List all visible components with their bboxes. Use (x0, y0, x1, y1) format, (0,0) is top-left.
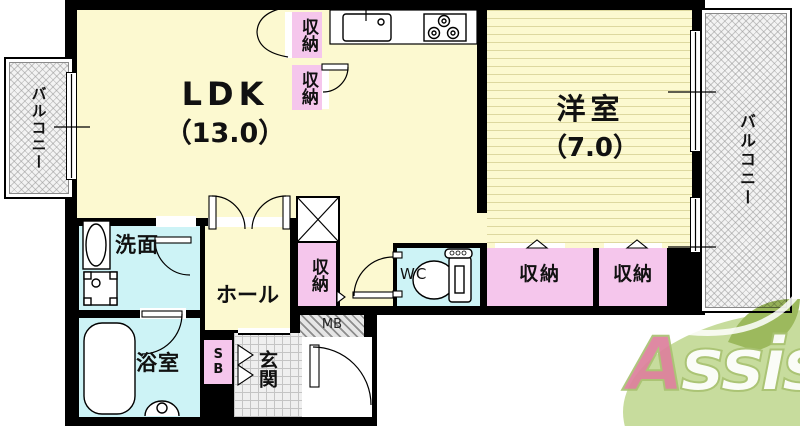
hall-label: ホール (205, 284, 290, 306)
balcony-left: バルコニー (4, 57, 74, 199)
shoe-box-label: SB (204, 341, 232, 383)
ldk-size-label: （13.0） (150, 120, 300, 148)
balcony-right-floor: バルコニー (705, 13, 787, 308)
washroom-label: 洗面 (106, 234, 168, 256)
room-western (487, 10, 692, 248)
meter-box-label: MB (300, 318, 364, 332)
balcony-right: バルコニー (700, 8, 792, 313)
entrance-step (238, 328, 290, 335)
room-hall (205, 226, 290, 330)
storage-hall-label: 収納 (299, 246, 335, 304)
balcony-right-label: バルコニー (734, 113, 758, 208)
corridor-wc (340, 218, 393, 306)
window-western-upper (690, 30, 701, 152)
room-ldk (77, 10, 477, 218)
assist-logo-text: Assist (627, 322, 800, 408)
pipe-space-box (296, 196, 340, 243)
assist-logo-letter-a: A (627, 322, 680, 408)
entrance-label: 玄関 (256, 350, 276, 388)
bathroom-label: 浴室 (118, 352, 198, 374)
balcony-left-floor: バルコニー (9, 62, 69, 194)
window-ldk-balcony (66, 72, 77, 180)
storage-b-label: 収納 (599, 265, 667, 285)
wc-label: WC (400, 267, 427, 283)
storage-a-label: 収納 (487, 265, 593, 285)
window-western-lower (690, 197, 701, 253)
closet-door-gap-top2 (322, 67, 329, 109)
western-room-label: 洋室 (528, 94, 653, 124)
assist-logo-rest: ssist (680, 322, 800, 408)
storage-top2-label: 収納 (292, 66, 322, 109)
western-room-size-label: （7.0） (535, 135, 645, 162)
entrance-doorway-area (302, 337, 372, 417)
balcony-left-label: バルコニー (29, 86, 50, 171)
ldk-label: LDK (165, 78, 285, 112)
storage-top1-label: 収納 (292, 13, 322, 57)
floorplan: バルコニー バルコニー (0, 0, 800, 426)
closet-door-gap-top1 (285, 12, 292, 58)
